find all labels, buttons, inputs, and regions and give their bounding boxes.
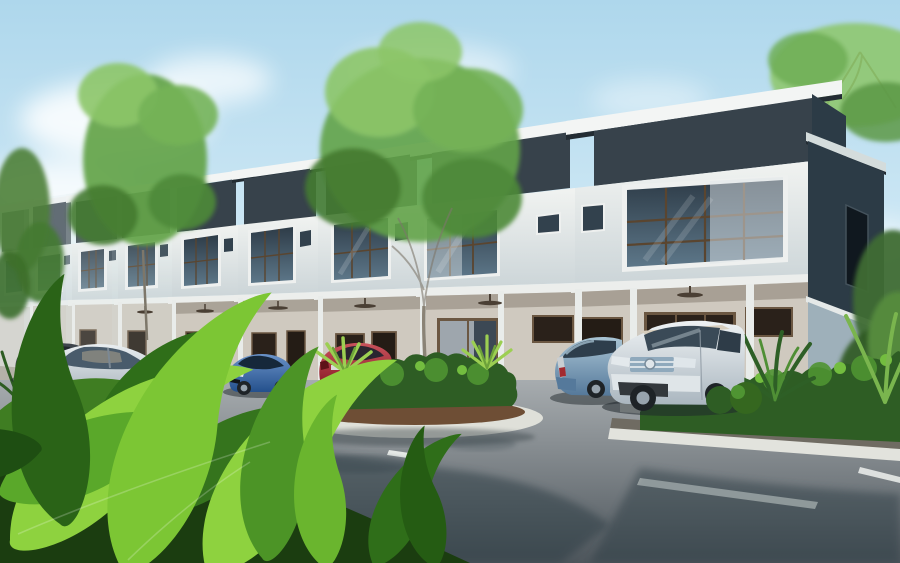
- small-window: [537, 213, 560, 234]
- small-window: [300, 230, 311, 247]
- bush-highlight: [424, 358, 448, 382]
- ground-window: [533, 316, 573, 342]
- bush-highlight: [731, 385, 745, 399]
- tree-canopy: [138, 85, 218, 145]
- architectural-render-image: [0, 0, 900, 563]
- tree-canopy: [768, 32, 848, 88]
- wheel-rim: [592, 385, 601, 394]
- rear-bumper: [556, 377, 576, 391]
- tree-canopy: [305, 148, 401, 228]
- bush-sunspot: [415, 361, 425, 371]
- tree-canopy: [148, 174, 216, 230]
- tree-canopy: [422, 158, 522, 238]
- bush-sunspot: [457, 365, 467, 375]
- hedge-sunspot: [834, 362, 846, 374]
- honda-badge: [645, 359, 655, 369]
- window-curtain: [710, 177, 783, 264]
- bush: [706, 386, 734, 414]
- car-interior: [82, 350, 122, 363]
- wheel-rim: [241, 385, 248, 392]
- side-window: [717, 330, 741, 353]
- taillight-red: [559, 367, 566, 377]
- small-window: [582, 204, 604, 232]
- scene: [0, 0, 900, 563]
- small-window: [224, 238, 233, 252]
- tree-canopy: [68, 185, 138, 245]
- hedge-highlight: [808, 362, 832, 386]
- tree-canopy: [378, 22, 462, 82]
- wheel-rim: [637, 392, 650, 405]
